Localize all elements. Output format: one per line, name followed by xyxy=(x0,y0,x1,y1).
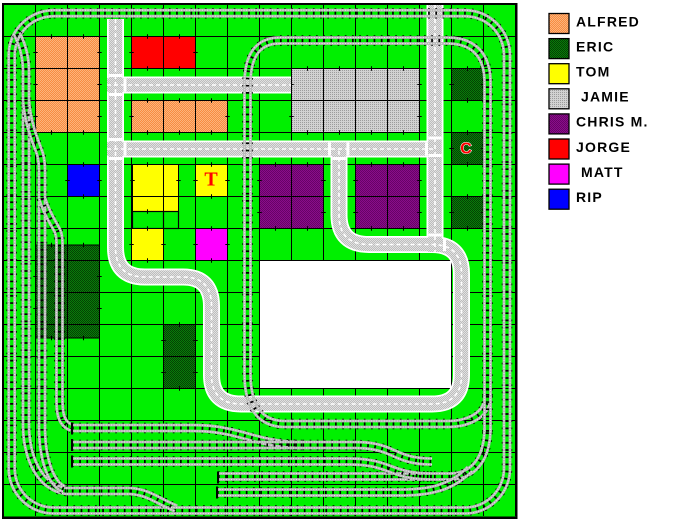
svg-text:MATT: MATT xyxy=(581,164,624,180)
svg-text:CHRIS M.: CHRIS M. xyxy=(576,114,649,130)
svg-text:C: C xyxy=(460,141,472,158)
svg-text:T: T xyxy=(204,169,218,191)
svg-text:JORGE: JORGE xyxy=(576,139,631,155)
svg-text:TOM: TOM xyxy=(576,64,610,80)
svg-text:RIP: RIP xyxy=(576,189,603,205)
svg-text:ALFRED: ALFRED xyxy=(576,13,640,29)
svg-text:ERIC: ERIC xyxy=(576,38,614,54)
svg-text:JAMIE: JAMIE xyxy=(581,89,630,105)
